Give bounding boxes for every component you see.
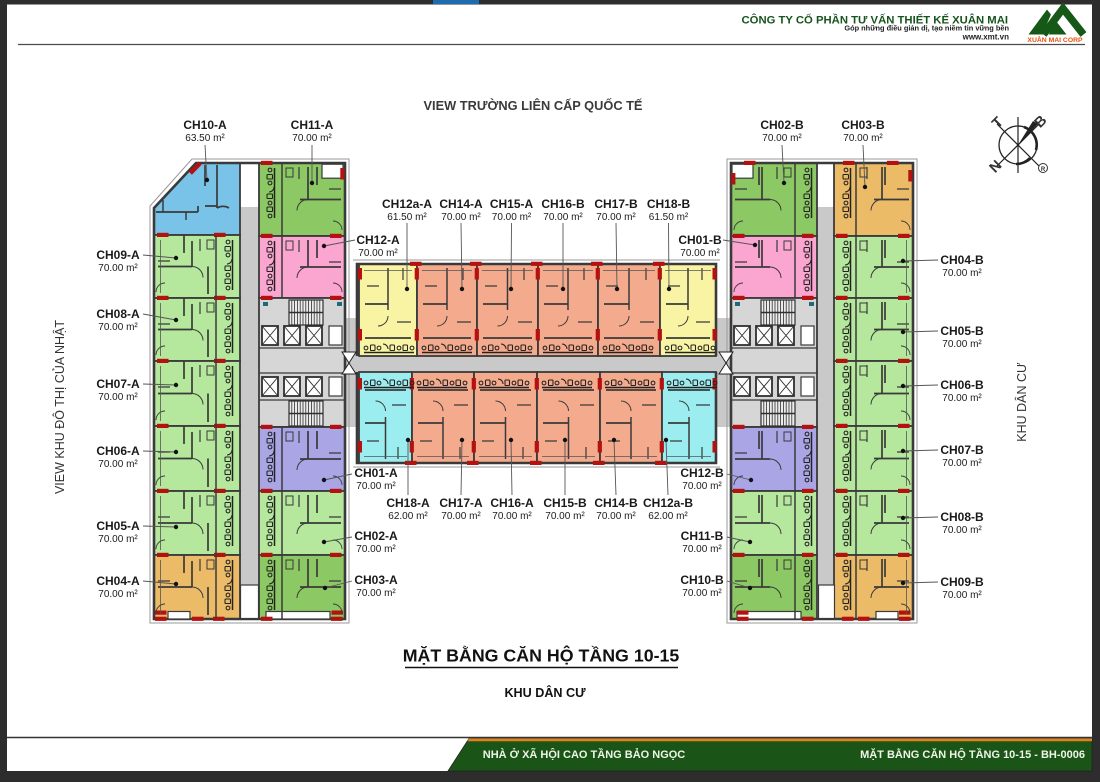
svg-text:62.00 m²: 62.00 m²	[388, 511, 428, 522]
svg-text:70.00 m²: 70.00 m²	[942, 525, 982, 536]
svg-text:CH12a-A: CH12a-A	[382, 197, 432, 211]
svg-text:VIEW TRƯỜNG LIÊN CẤP QUỐC TẾ: VIEW TRƯỜNG LIÊN CẤP QUỐC TẾ	[424, 98, 643, 113]
svg-text:CH06-A: CH06-A	[96, 444, 140, 458]
svg-text:70.00 m²: 70.00 m²	[543, 212, 583, 223]
svg-text:CH01-B: CH01-B	[678, 233, 722, 247]
svg-text:CH01-A: CH01-A	[354, 466, 398, 480]
svg-text:70.00 m²: 70.00 m²	[682, 544, 722, 555]
svg-text:CH07-A: CH07-A	[96, 377, 140, 391]
svg-text:CH09-A: CH09-A	[96, 248, 140, 262]
svg-text:70.00 m²: 70.00 m²	[98, 392, 138, 403]
svg-text:CH12-B: CH12-B	[680, 466, 724, 480]
svg-text:CH03-A: CH03-A	[354, 573, 398, 587]
svg-text:CH12a-B: CH12a-B	[643, 496, 693, 510]
svg-text:CH17-A: CH17-A	[439, 496, 483, 510]
svg-text:CH08-A: CH08-A	[96, 307, 140, 321]
svg-text:70.00 m²: 70.00 m²	[596, 212, 636, 223]
svg-text:70.00 m²: 70.00 m²	[98, 459, 138, 470]
svg-text:61.50 m²: 61.50 m²	[649, 212, 689, 223]
svg-text:www.xmt.vn: www.xmt.vn	[962, 33, 1009, 42]
svg-text:MẶT BẰNG CĂN HỘ TẦNG 10-15 -: MẶT BẰNG CĂN HỘ TẦNG 10-15 - BH-0006	[860, 748, 1085, 761]
svg-text:70.00 m²: 70.00 m²	[682, 481, 722, 492]
svg-text:CH11-B: CH11-B	[681, 529, 724, 543]
svg-text:70.00 m²: 70.00 m²	[942, 268, 982, 279]
svg-text:70.00 m²: 70.00 m²	[98, 263, 138, 274]
svg-text:CH10-B: CH10-B	[680, 573, 724, 587]
svg-text:70.00 m²: 70.00 m²	[492, 511, 532, 522]
svg-text:MẶT BẰNG CĂN HỘ TẦNG 10-15: MẶT BẰNG CĂN HỘ TẦNG 10-15	[403, 645, 680, 666]
svg-text:CH10-A: CH10-A	[183, 118, 227, 132]
svg-text:CH08-B: CH08-B	[940, 510, 984, 524]
svg-text:70.00 m²: 70.00 m²	[98, 322, 138, 333]
svg-text:70.00 m²: 70.00 m²	[942, 393, 982, 404]
svg-text:70.00 m²: 70.00 m²	[545, 511, 585, 522]
svg-text:70.00 m²: 70.00 m²	[843, 133, 883, 144]
svg-text:63.50 m²: 63.50 m²	[185, 133, 225, 144]
svg-text:CH09-B: CH09-B	[940, 575, 984, 589]
svg-text:CH05-B: CH05-B	[940, 324, 984, 338]
svg-text:XUÂN MAI CORP: XUÂN MAI CORP	[1027, 35, 1083, 44]
svg-text:70.00 m²: 70.00 m²	[680, 248, 720, 259]
svg-text:70.00 m²: 70.00 m²	[596, 511, 636, 522]
svg-text:70.00 m²: 70.00 m²	[441, 212, 481, 223]
svg-text:CH18-B: CH18-B	[647, 197, 691, 211]
svg-text:70.00 m²: 70.00 m²	[492, 212, 532, 223]
svg-text:CH15-A: CH15-A	[490, 197, 534, 211]
svg-text:CH15-B: CH15-B	[543, 496, 587, 510]
svg-text:61.50 m²: 61.50 m²	[387, 212, 427, 223]
svg-text:70.00 m²: 70.00 m²	[942, 339, 982, 350]
svg-text:CH18-A: CH18-A	[386, 496, 430, 510]
svg-text:70.00 m²: 70.00 m²	[942, 458, 982, 469]
svg-text:CH14-B: CH14-B	[594, 496, 638, 510]
svg-text:CH07-B: CH07-B	[940, 443, 984, 457]
svg-text:KHU DÂN CƯ: KHU DÂN CƯ	[504, 685, 586, 700]
svg-text:70.00 m²: 70.00 m²	[356, 481, 396, 492]
svg-text:CH16-B: CH16-B	[541, 197, 585, 211]
svg-text:70.00 m²: 70.00 m²	[356, 544, 396, 555]
svg-text:CH04-A: CH04-A	[96, 574, 140, 588]
svg-text:62.00 m²: 62.00 m²	[648, 511, 688, 522]
svg-text:KHU DÂN CƯ: KHU DÂN CƯ	[1014, 362, 1029, 442]
svg-text:70.00 m²: 70.00 m²	[292, 133, 332, 144]
svg-text:CH12-A: CH12-A	[356, 233, 400, 247]
svg-text:CH02-B: CH02-B	[760, 118, 804, 132]
svg-text:CH16-A: CH16-A	[490, 496, 534, 510]
svg-text:CH05-A: CH05-A	[96, 519, 140, 533]
svg-text:CH03-B: CH03-B	[841, 118, 885, 132]
svg-text:70.00 m²: 70.00 m²	[98, 534, 138, 545]
svg-text:VIEW KHU ĐÔ THỊ CỦA NHẬT: VIEW KHU ĐÔ THỊ CỦA NHẬT	[52, 320, 67, 494]
svg-text:CH17-B: CH17-B	[594, 197, 638, 211]
svg-text:CH06-B: CH06-B	[940, 378, 984, 392]
svg-text:CH04-B: CH04-B	[940, 253, 984, 267]
svg-text:70.00 m²: 70.00 m²	[942, 590, 982, 601]
svg-text:CH11-A: CH11-A	[291, 118, 334, 132]
svg-text:70.00 m²: 70.00 m²	[358, 248, 398, 259]
svg-text:NHÀ Ở XÃ HỘI CAO TẦNG BẢO NGỌC: NHÀ Ở XÃ HỘI CAO TẦNG BẢO NGỌC	[483, 748, 686, 761]
svg-text:70.00 m²: 70.00 m²	[98, 589, 138, 600]
svg-text:CH14-A: CH14-A	[439, 197, 483, 211]
svg-text:70.00 m²: 70.00 m²	[682, 588, 722, 599]
svg-text:70.00 m²: 70.00 m²	[441, 511, 481, 522]
svg-text:CH02-A: CH02-A	[354, 529, 398, 543]
svg-text:Góp những điều giản dị, tạo ni: Góp những điều giản dị, tạo niềm tin vữn…	[844, 24, 1009, 33]
svg-text:70.00 m²: 70.00 m²	[762, 133, 802, 144]
svg-text:70.00 m²: 70.00 m²	[356, 588, 396, 599]
svg-text:R: R	[1041, 167, 1046, 173]
